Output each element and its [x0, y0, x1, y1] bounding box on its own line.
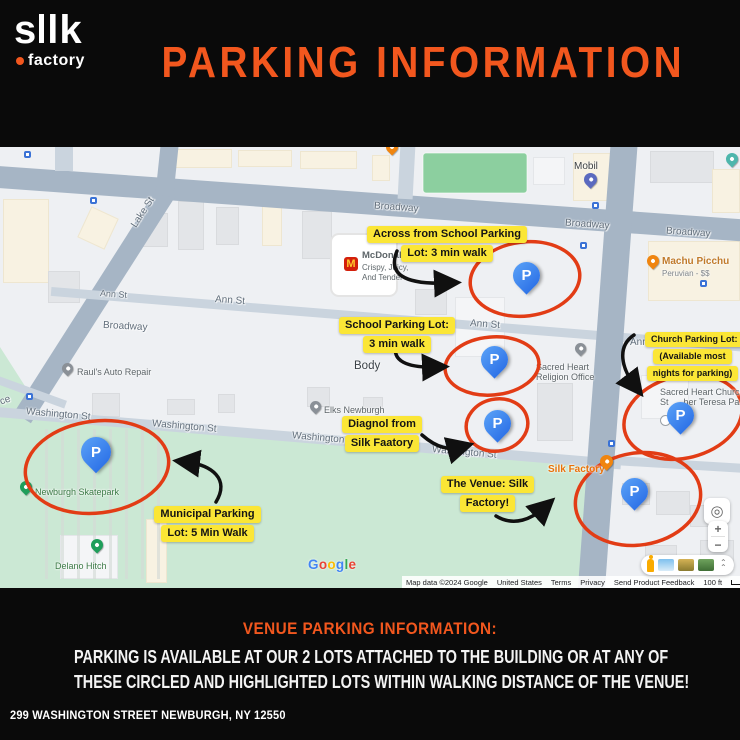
parking-pin-diagnol: P	[478, 404, 516, 442]
road-stub-topleft	[55, 147, 73, 171]
poi-label-skatepark: Newburgh Skatepark	[35, 487, 119, 497]
map-canvas[interactable]: Broadway Broadway Broadway Broadway Lake…	[0, 147, 740, 588]
building	[3, 199, 49, 283]
attribution-map-data: Map data ©2024 Google	[406, 578, 488, 587]
annotation-line: School Parking Lot:	[339, 317, 455, 334]
footer-line-2: THESE CIRCLED AND HIGHLIGHTED LOTS WITHI…	[74, 670, 666, 695]
collapse-chevron-icon[interactable]: ⌃⌃	[720, 560, 727, 570]
pegman-icon[interactable]	[647, 559, 654, 572]
annotation-line: Church Parking Lot:	[645, 332, 740, 347]
footer: VENUE PARKING INFORMATION: PARKING IS AV…	[0, 588, 740, 740]
poi-label-rauls: Raul's Auto Repair	[77, 367, 151, 377]
building	[300, 151, 357, 169]
logo-i-bar	[39, 14, 44, 43]
poi-label-machu-picchu: Machu Picchu Peruvian - $$	[662, 256, 729, 278]
transit-stop-icon	[608, 440, 615, 447]
annotation-venue: The Venue: Silk Factory!	[435, 474, 540, 512]
street-label-ann-st: Ann St	[470, 318, 501, 331]
building	[218, 394, 235, 413]
road-side-north	[398, 147, 416, 199]
street-label-ann-st: Ann St	[215, 294, 246, 307]
parking-pin-venue: P	[615, 472, 653, 510]
logo-subtitle: factory	[28, 52, 85, 70]
transit-stop-icon	[592, 202, 599, 209]
building	[415, 289, 447, 315]
annotation-line: Lot: 3 min walk	[401, 245, 492, 262]
attribution-terms-link[interactable]: Terms	[551, 578, 571, 587]
building	[167, 399, 195, 415]
street-label-broadway: Broadway	[565, 217, 610, 231]
annotation-line: nights for parking)	[647, 366, 739, 381]
sacred-church-line1: Sacred Heart Church	[660, 387, 740, 397]
scale-bar	[731, 580, 740, 585]
footer-line-1: PARKING IS AVAILABLE AT OUR 2 LOTS ATTAC…	[74, 645, 666, 670]
transit-stop-icon	[90, 197, 97, 204]
attribution-privacy-link[interactable]: Privacy	[580, 578, 605, 587]
logo-orange-dot	[16, 57, 24, 65]
poi-label-body: Body	[354, 360, 380, 373]
zoom-control: + −	[708, 521, 728, 552]
building	[216, 207, 239, 245]
annotation-line: Lot: 5 Min Walk	[161, 525, 253, 542]
transit-stop-icon	[700, 280, 707, 287]
annotation-line: (Available most	[653, 349, 731, 364]
annotation-line: The Venue: Silk	[441, 476, 534, 493]
machu-picchu-subtitle: Peruvian - $$	[662, 269, 710, 278]
building	[178, 201, 204, 250]
transit-stop-icon	[26, 393, 33, 400]
map-style-thumbnail[interactable]	[698, 559, 714, 571]
logo-wordmark: s lk	[14, 10, 85, 50]
poi-label-mobil: Mobil	[574, 161, 598, 173]
parking-pin-across: P	[507, 256, 545, 294]
building	[656, 491, 690, 515]
annotation-line: Municipal Parking	[154, 506, 260, 523]
machu-picchu-name: Machu Picchu	[662, 256, 729, 267]
silk-factory-logo: s lk factory	[14, 10, 85, 70]
poi-label-sacred-heart-office: Sacred Heart Religion Office	[536, 362, 594, 383]
sacred-office-line2: Religion Office	[536, 372, 594, 382]
building	[238, 150, 292, 167]
annotation-line: Factory!	[460, 495, 515, 512]
building	[92, 393, 120, 417]
google-watermark: Google	[308, 557, 356, 572]
attribution-region[interactable]: United States	[497, 578, 542, 587]
transit-stop-icon	[24, 151, 31, 158]
annotation-church: Church Parking Lot: (Available most nigh…	[645, 330, 740, 381]
page-title: PARKING INFORMATION	[162, 38, 624, 88]
street-label-broadway: Broadway	[103, 320, 148, 333]
building	[372, 155, 390, 181]
annotation-line: 3 min walk	[363, 336, 431, 353]
place-pin-icon	[724, 151, 740, 168]
building	[533, 157, 565, 185]
zoom-in-button[interactable]: +	[708, 521, 728, 536]
annotation-diagnol: Diagnol from Silk Faatory	[336, 414, 428, 452]
building	[537, 383, 573, 441]
parking-flyer: s lk factory PARKING INFORMATION	[0, 0, 740, 740]
sacred-office-line1: Sacred Heart	[536, 362, 589, 372]
transit-stop-icon	[580, 242, 587, 249]
parking-pin-church: P	[661, 396, 699, 434]
map-style-thumbnail[interactable]	[658, 559, 674, 571]
road-washington-east	[614, 456, 740, 473]
mcdonalds-line3: And Tender	[362, 273, 403, 282]
zoom-out-button[interactable]: −	[708, 537, 728, 552]
building	[77, 206, 119, 249]
street-label-ann-st: Ann St	[100, 288, 128, 300]
attribution-feedback-link[interactable]: Send Product Feedback	[614, 578, 694, 587]
street-label-broadway: Broadway	[666, 225, 711, 239]
annotation-across: Across from School Parking Lot: 3 min wa…	[362, 224, 532, 262]
annotation-line: Diagnol from	[342, 416, 422, 433]
footer-heading: VENUE PARKING INFORMATION:	[37, 619, 703, 639]
mcdonalds-icon: M	[344, 257, 358, 271]
street-label-partial: ce	[0, 394, 12, 408]
poi-label-delano: Delano Hitch	[55, 561, 107, 571]
scale-label: 100 ft	[703, 578, 722, 587]
venue-address: 299 WASHINGTON STREET NEWBURGH, NY 12550	[10, 708, 286, 722]
building	[712, 169, 740, 213]
poi-label-silk-factory: Silk Factory	[548, 464, 605, 476]
building	[302, 211, 332, 259]
mcdonalds-line2: Crispy, Juicy,	[362, 263, 408, 272]
parking-pin-school: P	[475, 340, 513, 378]
annotation-line: Across from School Parking	[367, 226, 527, 243]
place-pin-icon	[573, 341, 589, 357]
building	[650, 151, 714, 183]
annotation-municipal: Municipal Parking Lot: 5 Min Walk	[150, 504, 265, 542]
annotation-line: Silk Faatory	[345, 435, 419, 452]
map-style-thumbnail[interactable]	[678, 559, 694, 571]
parking-pin-municipal: P	[75, 431, 117, 473]
pegman-bar: ⌃⌃	[641, 555, 734, 575]
street-label-washington-st: Washington St	[432, 444, 497, 461]
annotation-school: School Parking Lot: 3 min walk	[336, 315, 458, 353]
building	[262, 204, 282, 246]
map-attribution: Map data ©2024 Google United States Term…	[402, 576, 740, 588]
